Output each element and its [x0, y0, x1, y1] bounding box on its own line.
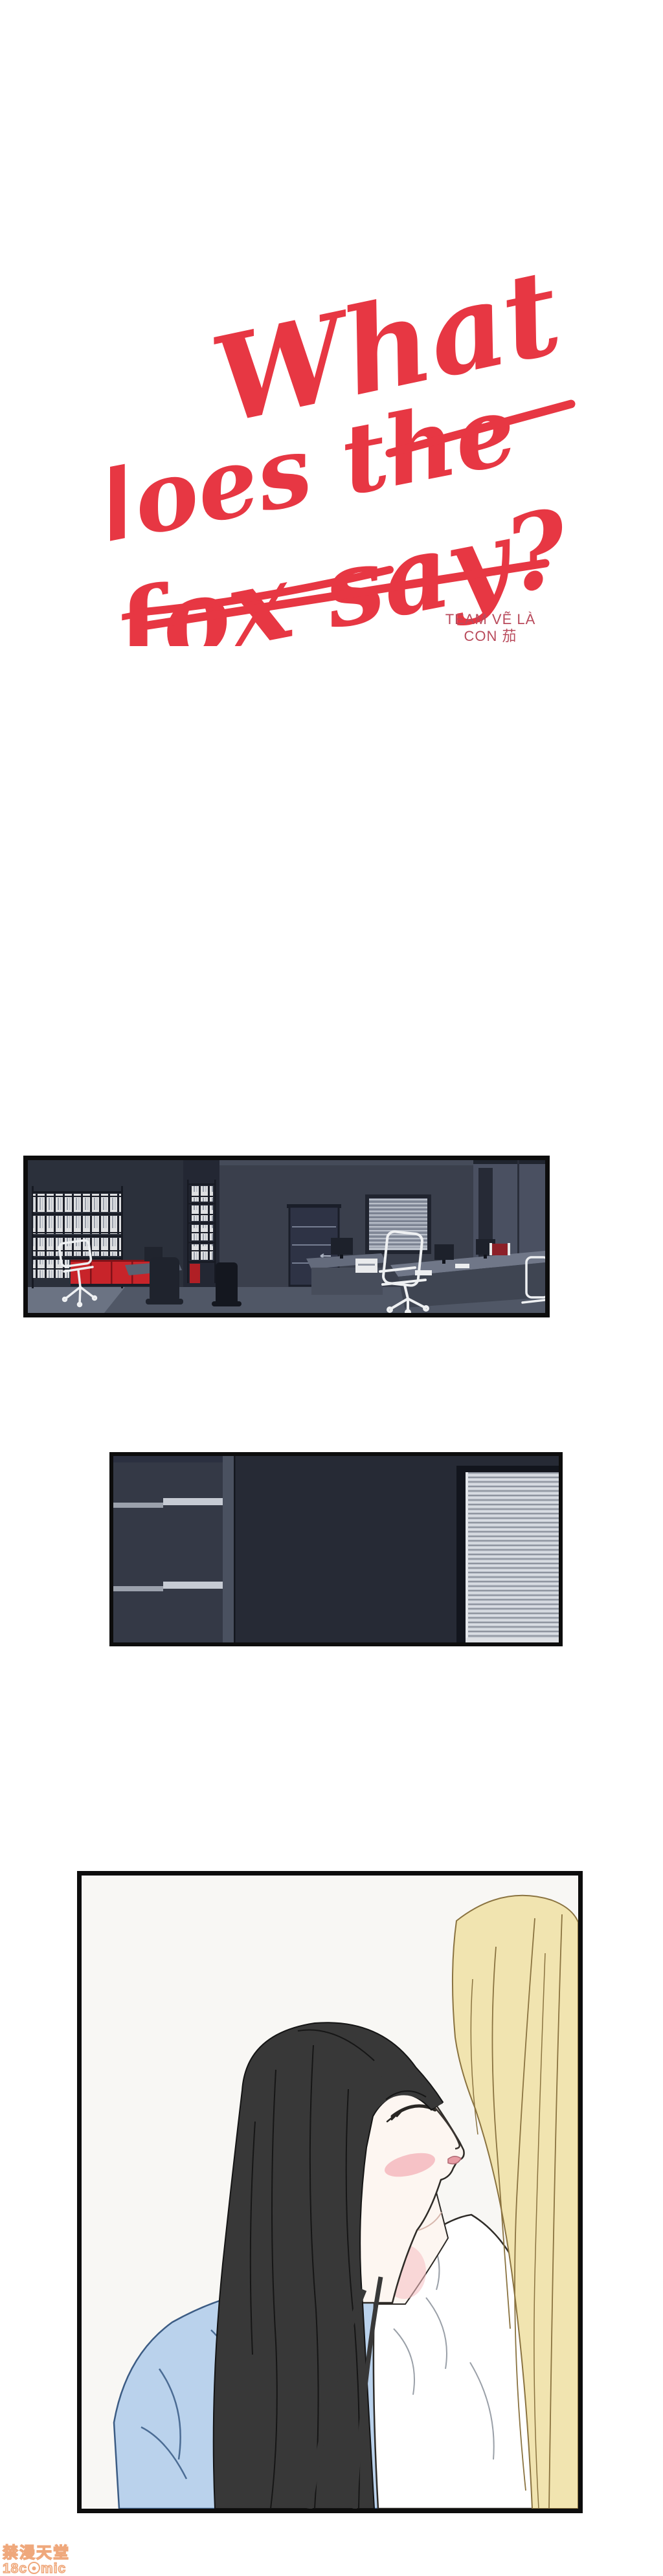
- credit-line-2: CON 茄: [421, 628, 560, 645]
- title-logo: What does the fox say?: [110, 258, 583, 646]
- watermark-line-2-prefix: 18c: [3, 2561, 27, 2576]
- watermark-line-1: 禁漫天堂: [3, 2546, 70, 2561]
- room-window-sill: [466, 1638, 559, 1642]
- room-scene: [113, 1456, 559, 1642]
- office-chair-silhouette: [146, 1257, 183, 1305]
- office-red-books: [492, 1244, 508, 1255]
- credit-line-1: TEAM VẼ LÀ: [421, 611, 560, 628]
- watermark-line-2-suffix: mic: [41, 2561, 66, 2576]
- credit-text: TEAM VẼ LÀ CON 茄: [421, 611, 560, 645]
- room-cabinet: [113, 1456, 223, 1642]
- office-chair-silhouette-2: [212, 1262, 242, 1306]
- office-scene: [28, 1160, 545, 1313]
- room-window-blinds: [456, 1466, 559, 1642]
- office-red-strip: [190, 1264, 200, 1283]
- title-logo-svg: What does the fox say?: [110, 258, 583, 646]
- panel-office: [23, 1156, 550, 1317]
- panel-room: [109, 1452, 563, 1646]
- room-divider-strip: [223, 1456, 236, 1642]
- panel-embrace: [77, 1871, 583, 2513]
- watermark-fox-icon: [28, 2562, 40, 2574]
- embrace-scene: [82, 1876, 578, 2509]
- watermark-line-2: 18cmic: [3, 2562, 66, 2575]
